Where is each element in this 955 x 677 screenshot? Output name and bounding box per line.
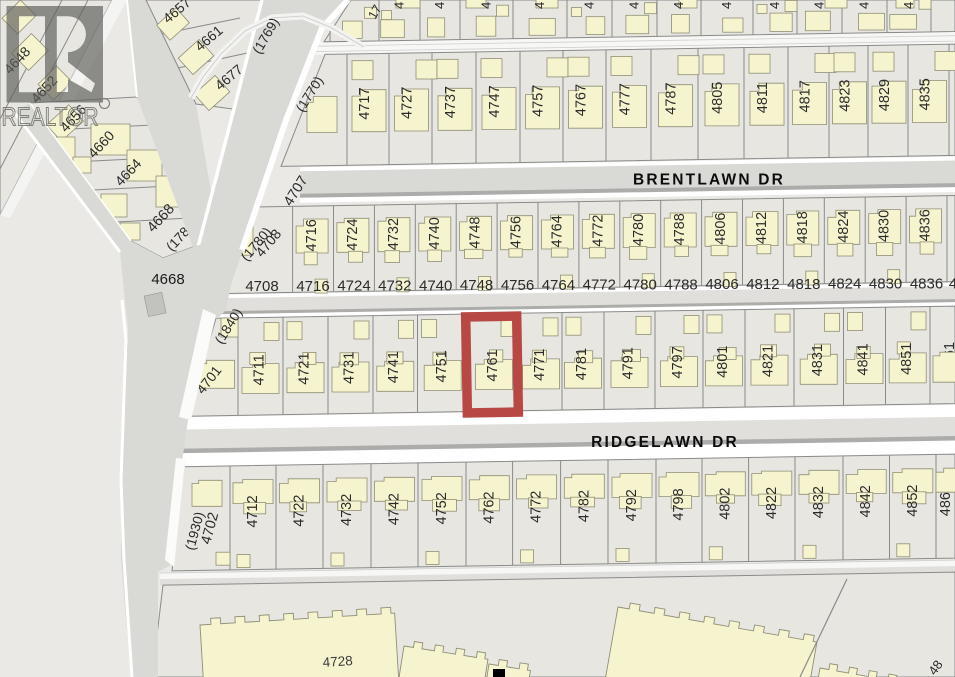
svg-text:BRENTLAWN DR: BRENTLAWN DR xyxy=(633,172,785,189)
svg-text:4798: 4798 xyxy=(671,488,687,520)
svg-text:4712: 4712 xyxy=(245,495,261,527)
svg-text:4817: 4817 xyxy=(798,80,814,112)
svg-text:4708: 4708 xyxy=(245,278,278,295)
svg-text:4836: 4836 xyxy=(910,275,943,292)
svg-text:4740: 4740 xyxy=(419,277,452,294)
svg-text:4777: 4777 xyxy=(618,83,634,115)
svg-text:4742: 4742 xyxy=(387,493,403,525)
svg-text:4668: 4668 xyxy=(151,271,184,288)
svg-text:4: 4 xyxy=(857,2,872,9)
svg-text:RIDGELAWN DR: RIDGELAWN DR xyxy=(591,434,739,451)
svg-text:REALTOR: REALTOR xyxy=(2,104,99,132)
svg-text:4772: 4772 xyxy=(529,491,545,523)
svg-text:4: 4 xyxy=(627,2,642,9)
svg-text:4762: 4762 xyxy=(481,491,497,523)
svg-text:4: 4 xyxy=(767,2,782,9)
svg-text:4806: 4806 xyxy=(713,213,729,245)
svg-text:4772: 4772 xyxy=(590,215,606,247)
svg-text:4751: 4751 xyxy=(434,350,450,382)
svg-text:4747: 4747 xyxy=(487,85,503,117)
svg-text:4: 4 xyxy=(949,275,955,292)
svg-text:4841: 4841 xyxy=(856,343,872,375)
svg-text:4767: 4767 xyxy=(574,84,590,116)
svg-text:4823: 4823 xyxy=(838,80,854,112)
svg-text:4771: 4771 xyxy=(532,349,548,381)
svg-text:4740: 4740 xyxy=(427,217,443,249)
svg-text:4821: 4821 xyxy=(761,345,777,377)
svg-text:4752: 4752 xyxy=(434,492,450,524)
svg-text:4756: 4756 xyxy=(509,216,525,248)
svg-text:4711: 4711 xyxy=(252,354,268,385)
svg-text:4732: 4732 xyxy=(339,494,355,526)
svg-text:4802: 4802 xyxy=(717,488,733,520)
svg-text:4: 4 xyxy=(392,2,407,9)
svg-text:4717: 4717 xyxy=(357,87,373,119)
svg-text:4818: 4818 xyxy=(795,211,811,243)
svg-text:4: 4 xyxy=(432,2,447,9)
svg-text:4: 4 xyxy=(901,2,916,9)
svg-text:4811: 4811 xyxy=(755,82,771,113)
svg-text:4724: 4724 xyxy=(345,219,361,251)
svg-text:4756: 4756 xyxy=(501,277,534,294)
svg-text:4830: 4830 xyxy=(877,210,893,242)
svg-text:4824: 4824 xyxy=(836,211,852,243)
svg-text:4831: 4831 xyxy=(810,344,826,376)
svg-text:4737: 4737 xyxy=(443,86,459,118)
svg-text:4788: 4788 xyxy=(672,213,688,245)
svg-text:4787: 4787 xyxy=(664,82,680,114)
svg-text:4716: 4716 xyxy=(304,219,320,251)
svg-text:4728: 4728 xyxy=(322,653,353,670)
svg-text:4757: 4757 xyxy=(531,85,547,117)
svg-text:4851: 4851 xyxy=(899,343,915,375)
svg-text:4764: 4764 xyxy=(542,277,575,294)
svg-text:4852: 4852 xyxy=(905,485,921,517)
svg-text:4812: 4812 xyxy=(754,212,770,244)
svg-text:4721: 4721 xyxy=(297,352,313,384)
svg-text:4824: 4824 xyxy=(828,276,861,293)
svg-text:4805: 4805 xyxy=(710,82,726,114)
svg-text:4722: 4722 xyxy=(292,495,308,527)
svg-text:4806: 4806 xyxy=(705,276,738,293)
svg-text:4748: 4748 xyxy=(460,277,493,294)
svg-text:4781: 4781 xyxy=(574,348,590,380)
svg-text:4: 4 xyxy=(719,2,734,9)
svg-text:4818: 4818 xyxy=(787,276,820,293)
svg-text:4716: 4716 xyxy=(296,278,329,295)
svg-text:4829: 4829 xyxy=(877,79,893,111)
svg-text:4772: 4772 xyxy=(583,277,616,294)
svg-text:4780: 4780 xyxy=(631,214,647,246)
svg-text:4791: 4791 xyxy=(621,347,637,379)
svg-text:4732: 4732 xyxy=(378,278,411,295)
svg-text:4732: 4732 xyxy=(386,218,402,250)
svg-text:4830: 4830 xyxy=(869,276,902,293)
svg-text:4836: 4836 xyxy=(918,209,934,241)
svg-text:4812: 4812 xyxy=(746,276,779,293)
svg-text:4741: 4741 xyxy=(386,351,402,383)
svg-text:4: 4 xyxy=(812,2,827,9)
svg-text:4792: 4792 xyxy=(624,489,640,521)
svg-text:4835: 4835 xyxy=(918,78,934,110)
svg-text:4727: 4727 xyxy=(400,87,416,119)
svg-text:4801: 4801 xyxy=(715,346,731,378)
svg-text:4724: 4724 xyxy=(337,278,370,295)
svg-text:4: 4 xyxy=(671,2,686,9)
svg-text:4: 4 xyxy=(582,2,597,9)
svg-text:4761: 4761 xyxy=(485,349,501,381)
svg-text:4: 4 xyxy=(532,2,547,9)
svg-text:4: 4 xyxy=(479,2,494,9)
svg-text:4731: 4731 xyxy=(342,352,358,384)
svg-text:4748: 4748 xyxy=(468,217,484,249)
svg-text:4782: 4782 xyxy=(576,490,592,522)
svg-text:4788: 4788 xyxy=(664,276,697,293)
svg-text:4797: 4797 xyxy=(670,346,686,378)
svg-text:4780: 4780 xyxy=(624,277,657,294)
svg-text:4764: 4764 xyxy=(550,215,566,247)
svg-text:4842: 4842 xyxy=(858,485,874,517)
svg-text:4832: 4832 xyxy=(811,486,827,518)
svg-text:4822: 4822 xyxy=(764,487,780,519)
